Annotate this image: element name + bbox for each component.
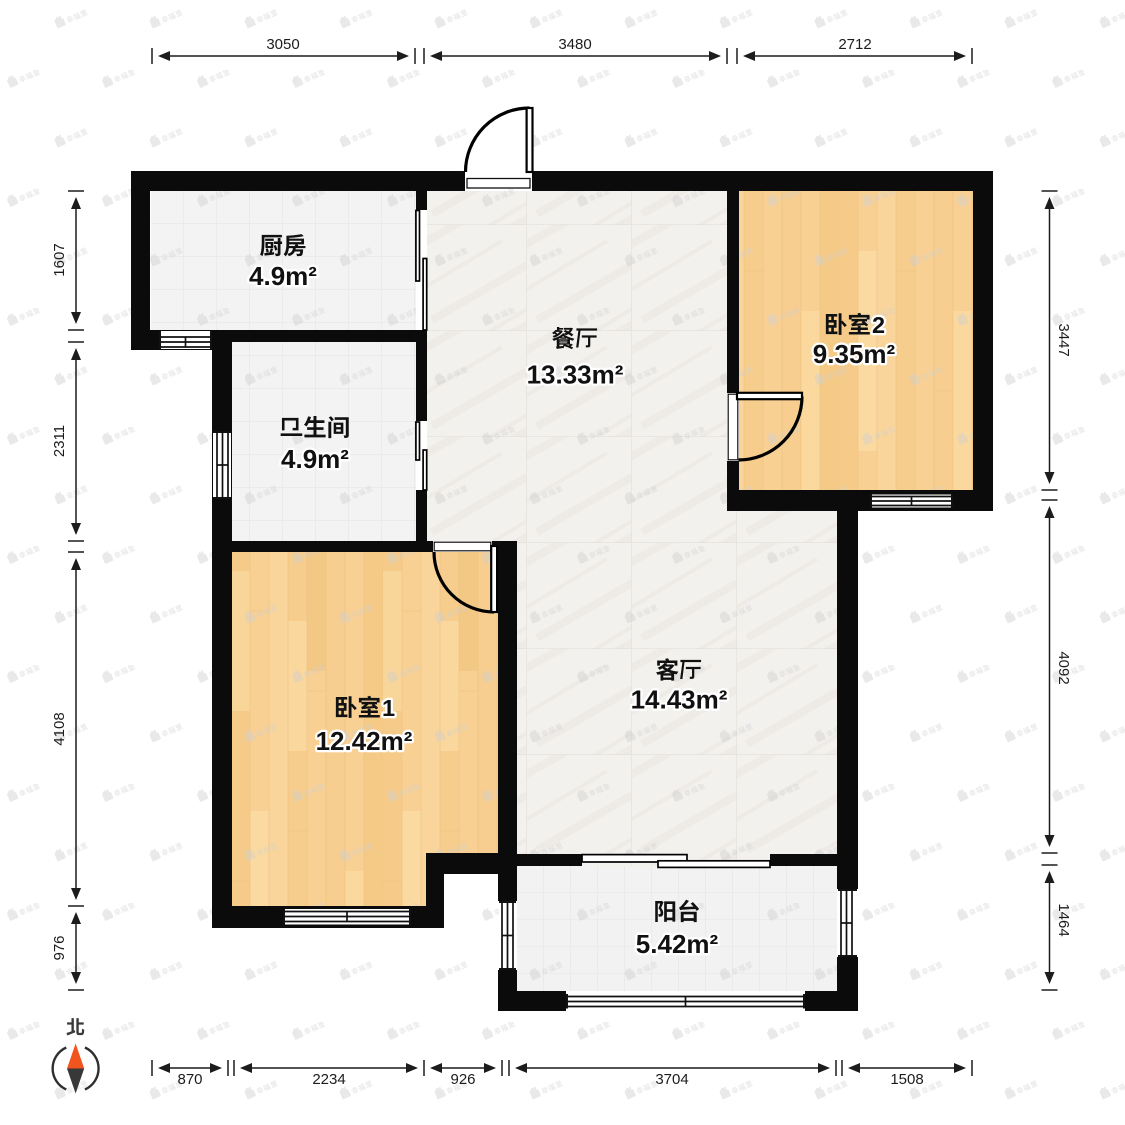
svg-text:3704: 3704 bbox=[655, 1071, 688, 1088]
svg-text:2712: 2712 bbox=[838, 36, 871, 53]
svg-text:4108: 4108 bbox=[51, 712, 68, 745]
svg-text:3050: 3050 bbox=[266, 36, 299, 53]
svg-text:2234: 2234 bbox=[312, 1071, 345, 1088]
svg-text:3480: 3480 bbox=[558, 36, 591, 53]
svg-text:2: 2 bbox=[872, 312, 885, 338]
svg-text:1607: 1607 bbox=[51, 243, 68, 276]
svg-text:5.42m²: 5.42m² bbox=[636, 929, 719, 959]
svg-text:3447: 3447 bbox=[1055, 323, 1072, 356]
svg-text:1508: 1508 bbox=[890, 1071, 923, 1088]
svg-text:1464: 1464 bbox=[1055, 903, 1072, 936]
svg-text:4092: 4092 bbox=[1055, 651, 1072, 684]
svg-text:976: 976 bbox=[51, 935, 68, 960]
svg-text:870: 870 bbox=[177, 1071, 202, 1088]
svg-text:1: 1 bbox=[382, 695, 395, 721]
svg-text:9.35m²: 9.35m² bbox=[813, 339, 896, 369]
svg-text:2311: 2311 bbox=[51, 425, 68, 457]
svg-text:14.43m²: 14.43m² bbox=[631, 685, 728, 715]
svg-text:4.9m²: 4.9m² bbox=[281, 444, 349, 474]
svg-text:12.42m²: 12.42m² bbox=[316, 726, 413, 756]
svg-text:4.9m²: 4.9m² bbox=[249, 261, 317, 291]
svg-text:926: 926 bbox=[450, 1071, 475, 1088]
svg-text:13.33m²: 13.33m² bbox=[527, 360, 624, 390]
